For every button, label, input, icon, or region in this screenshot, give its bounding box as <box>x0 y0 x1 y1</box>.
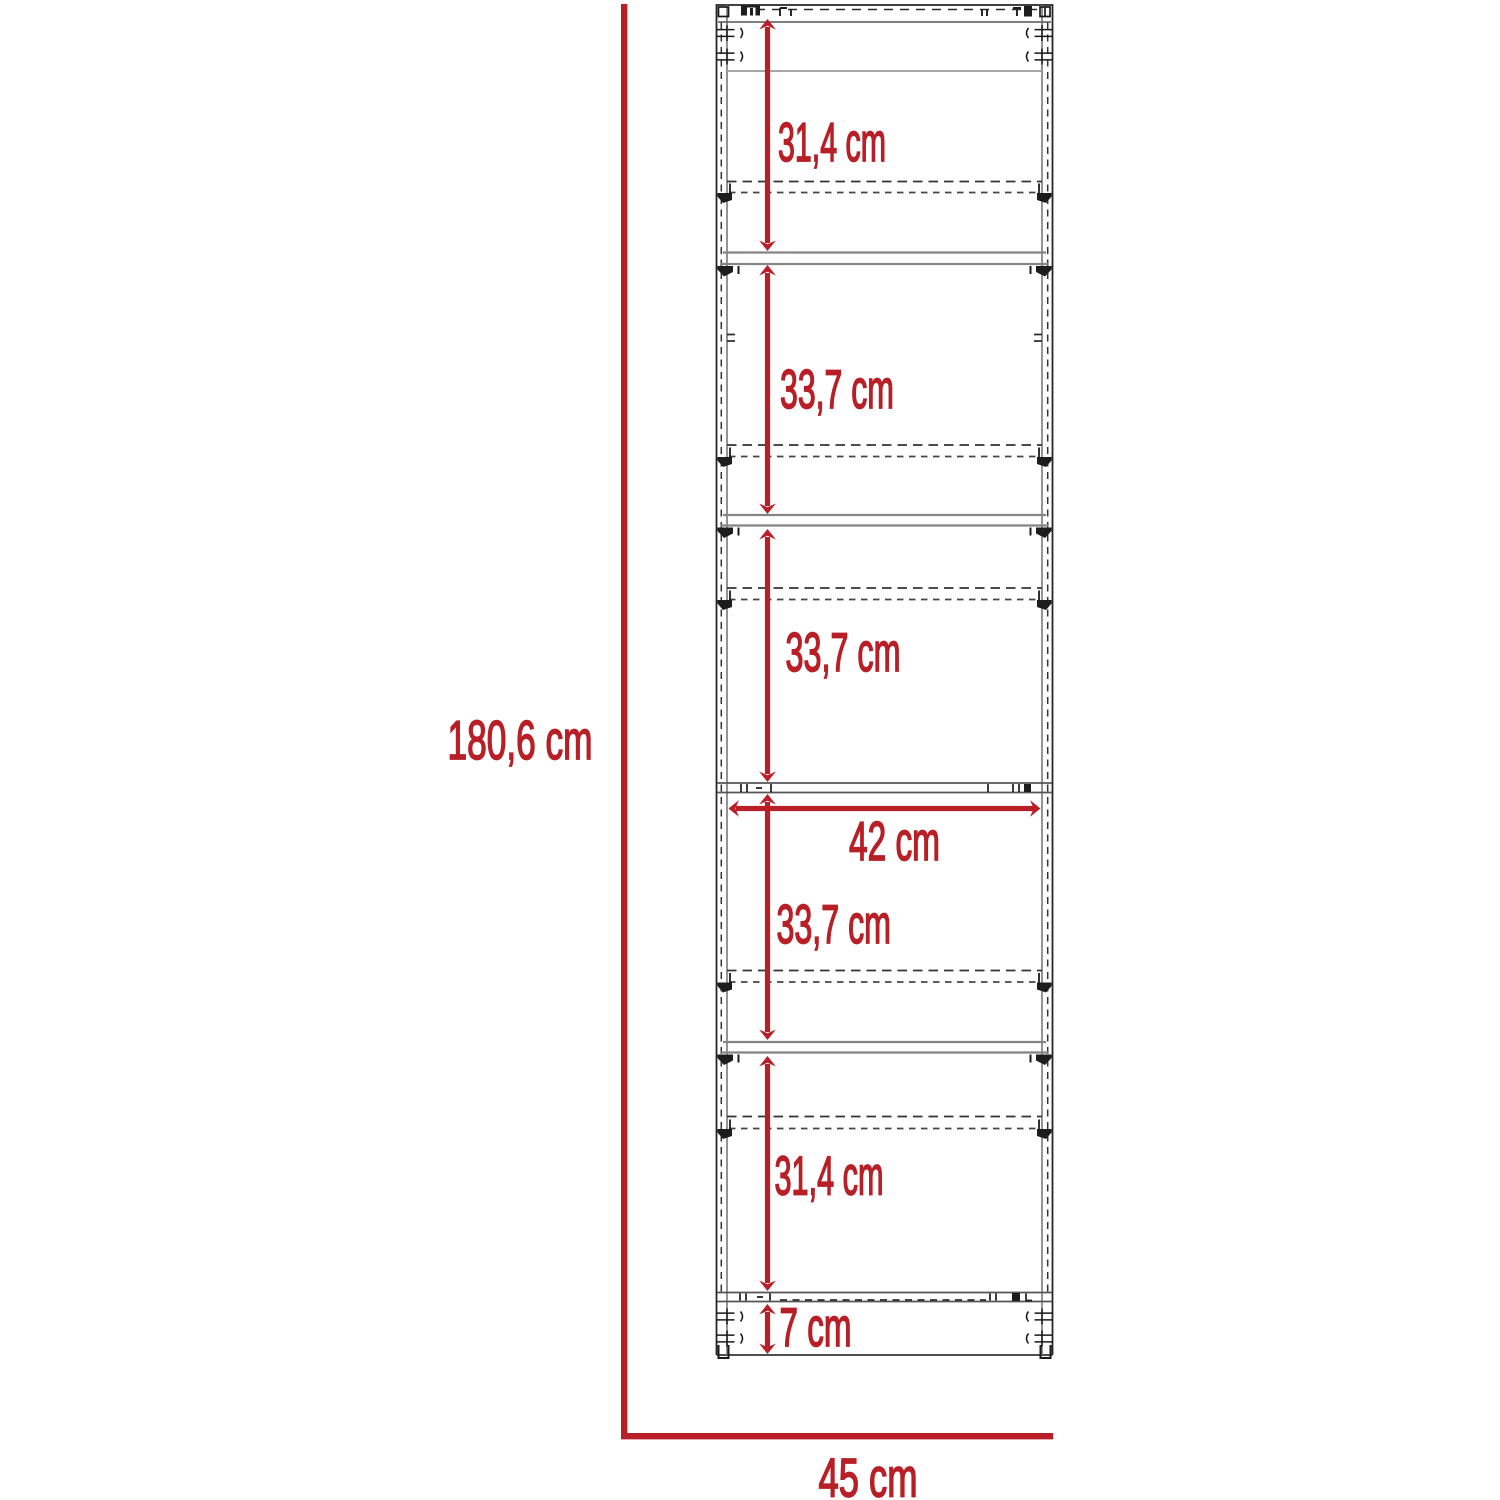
svg-text:33,7 cm: 33,7 cm <box>786 621 901 683</box>
svg-text:45 cm: 45 cm <box>819 1447 918 1500</box>
svg-text:31,4 cm: 31,4 cm <box>775 1145 884 1207</box>
svg-text:180,6 cm: 180,6 cm <box>448 709 593 771</box>
svg-text:31,4 cm: 31,4 cm <box>778 111 886 173</box>
svg-text:33,7 cm: 33,7 cm <box>780 358 894 420</box>
svg-text:33,7 cm: 33,7 cm <box>777 893 892 955</box>
svg-text:7 cm: 7 cm <box>780 1296 852 1358</box>
svg-text:42 cm: 42 cm <box>849 810 940 872</box>
